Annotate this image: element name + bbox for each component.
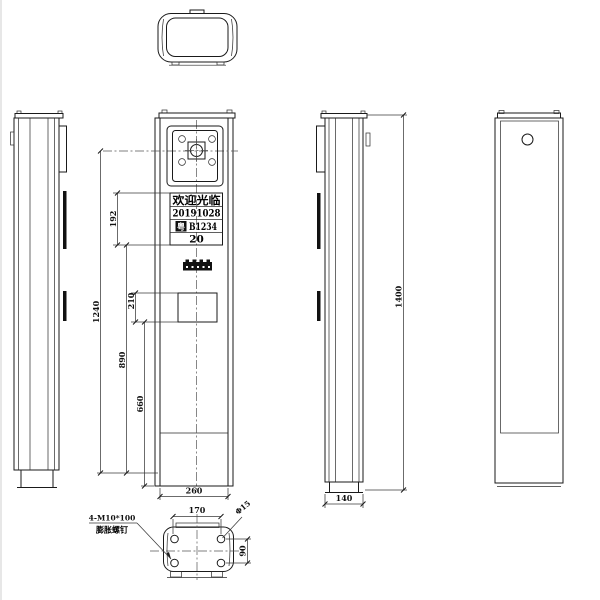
top-view-right-arc — [232, 19, 234, 56]
dim-front-width: 260 — [186, 486, 203, 496]
anchor-hole — [217, 559, 225, 567]
top-view-inner-shell — [167, 18, 229, 57]
front-view: 欢迎光临 20191028 粤 B1234 20 — [103, 110, 238, 490]
plate-province-text: 粤 — [177, 222, 185, 232]
camera-screw-hole — [209, 159, 216, 166]
right-view-camera-profile — [317, 126, 326, 172]
left-side-view — [11, 111, 67, 488]
base-plate-left-arc — [167, 533, 168, 566]
right-view-hinge-tab — [366, 133, 370, 146]
left-view-top-cap — [15, 114, 63, 119]
back-view-lock-hole — [522, 134, 533, 145]
back-view-top-cap — [498, 113, 561, 118]
camera-module — [167, 126, 223, 186]
camera-screw-hole — [209, 136, 216, 143]
dim-front-total-height: 1240 — [91, 300, 101, 323]
base-foot-right — [212, 572, 223, 578]
camera-screw-hole — [179, 136, 186, 143]
base-foot-left — [171, 572, 182, 578]
pillar-engineering-drawing: 欢迎光临 20191028 粤 B1234 20 — [0, 0, 600, 600]
right-view-reader-profile — [317, 291, 321, 321]
left-view-camera-profile — [59, 126, 67, 172]
top-view-tab — [190, 10, 204, 14]
card-reader-window — [178, 293, 217, 322]
display-row4-text: 20 — [189, 234, 204, 246]
left-view-body — [14, 118, 59, 470]
dim-lower-section-height: 890 — [117, 351, 127, 368]
right-side-view: 140 1400 — [317, 111, 408, 508]
base-plate-right-arc — [229, 533, 230, 566]
dim-anchor-hole-pitch-depth: 90 — [238, 545, 248, 557]
led-display-panel: 欢迎光临 20191028 粤 B1234 20 — [170, 193, 223, 246]
right-view-body — [325, 118, 363, 482]
anchor-hole — [171, 535, 179, 543]
left-view-reader-profile — [63, 291, 67, 321]
right-view-display-profile — [317, 193, 321, 249]
left-view-hinge-tab — [11, 132, 15, 145]
display-row2-text: 20191028 — [173, 208, 221, 220]
right-view-top-cap — [321, 114, 367, 119]
dim-base-section-height: 660 — [135, 395, 145, 412]
anchor-hole — [171, 559, 179, 567]
dim-side-depth: 140 — [336, 493, 353, 503]
left-view-display-profile — [63, 191, 67, 249]
front-top-cap — [159, 113, 235, 118]
speaker-grille-icon — [183, 260, 212, 271]
camera-screw-hole — [179, 159, 186, 166]
back-view-body — [495, 118, 563, 483]
dim-overall-height: 1400 — [394, 285, 404, 308]
base-plate-outline — [164, 527, 234, 572]
cad-drawing-sheet: 欢迎光临 20191028 粤 B1234 20 — [0, 0, 600, 600]
anchor-bolt-spec: 4-M10*100 — [89, 514, 136, 523]
top-view — [158, 10, 237, 65]
anchor-bolt-type: 膨胀螺钉 — [95, 525, 128, 535]
base-plate-detail: 170 Φ15 90 4-M10*100 膨胀螺钉 — [89, 499, 253, 580]
display-row1-text: 欢迎光临 — [171, 193, 220, 207]
dim-display-height: 192 — [108, 211, 118, 228]
dim-anchor-hole-diameter: Φ15 — [234, 499, 253, 517]
dim-reader-window-height: 210 — [126, 292, 136, 309]
top-view-left-arc — [162, 19, 164, 56]
back-view — [495, 111, 563, 487]
plate-number-text: B1234 — [189, 221, 217, 233]
back-view-access-panel — [501, 121, 559, 433]
dim-anchor-hole-pitch-width: 170 — [189, 505, 206, 515]
